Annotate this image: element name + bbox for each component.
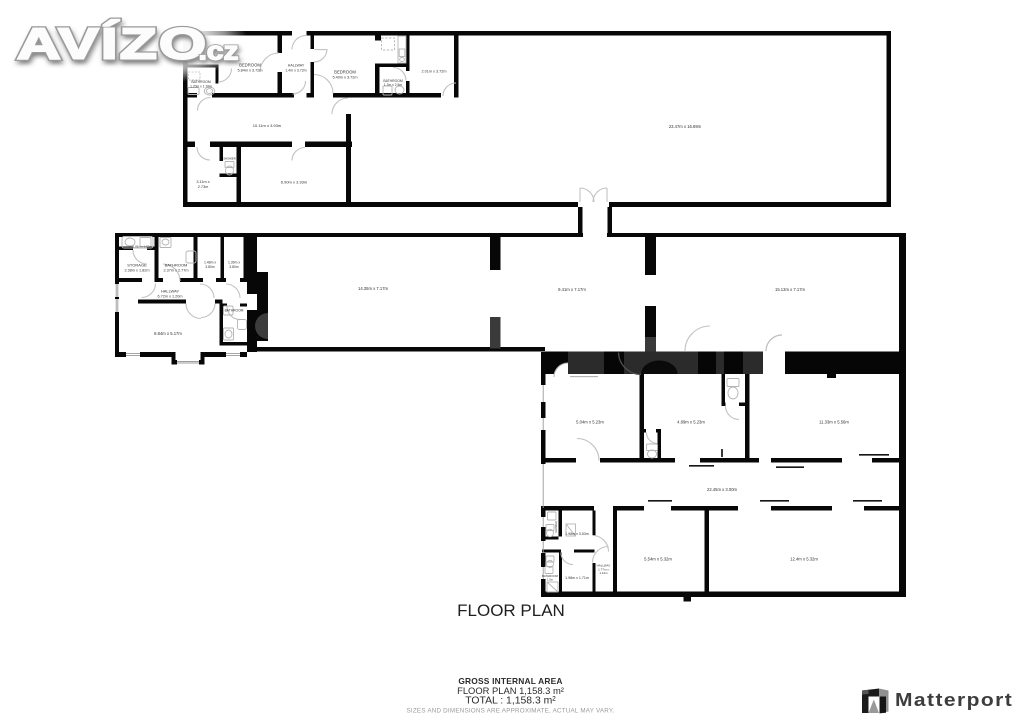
svg-text:8.84m x 5.17m: 8.84m x 5.17m	[154, 331, 182, 336]
svg-text:11.33m x 5.56m: 11.33m x 5.56m	[819, 420, 849, 425]
svg-text:BATHROOM: BATHROOM	[165, 263, 188, 268]
svg-text:1.4m x 3.72m: 1.4m x 3.72m	[285, 68, 306, 72]
svg-text:4.89m x 5.23m: 4.89m x 5.23m	[677, 420, 705, 425]
svg-text:1.69m x 1.07m: 1.69m x 1.07m	[133, 245, 152, 249]
svg-text:5.04m x 5.23m: 5.04m x 5.23m	[576, 420, 604, 425]
svg-text:.cz: .cz	[198, 37, 238, 65]
svg-text:SHOWER: SHOWER	[554, 521, 558, 533]
svg-text:1.70m x 1.70m: 1.70m x 1.70m	[190, 84, 212, 88]
svg-text:5.84m x 3.72m: 5.84m x 3.72m	[237, 69, 262, 73]
svg-text:22.45m x 3.00m: 22.45m x 3.00m	[707, 487, 738, 492]
svg-text:1.98m x 3.53m: 1.98m x 3.53m	[565, 532, 589, 536]
svg-text:6.90m x 3.93m: 6.90m x 3.93m	[281, 180, 308, 185]
svg-text:HALLWAY: HALLWAY	[161, 289, 180, 294]
svg-text:BATHROOM: BATHROOM	[225, 309, 244, 313]
svg-text:SIZES AND DIMENSIONS ARE APPRO: SIZES AND DIMENSIONS ARE APPROXIMATE, AC…	[407, 708, 615, 715]
svg-text:2.73m: 2.73m	[198, 185, 209, 189]
svg-text:23.47m x 16.89m: 23.47m x 16.89m	[669, 124, 702, 129]
svg-text:BEDROOM: BEDROOM	[334, 70, 356, 75]
svg-text:2.01m x 3.72m: 2.01m x 3.72m	[421, 70, 446, 74]
svg-text:3.80m: 3.80m	[229, 265, 239, 269]
svg-text:SHOWER: SHOWER	[223, 157, 236, 161]
svg-text:2.37m x 2.77m: 2.37m x 2.77m	[163, 269, 188, 273]
svg-text:BEDROOM: BEDROOM	[239, 63, 261, 68]
svg-text:12.4m x 5.32m: 12.4m x 5.32m	[790, 557, 818, 562]
svg-text:10.11m x 3.93m: 10.11m x 3.93m	[253, 123, 282, 128]
svg-text:AVÍZO: AVÍZO	[17, 19, 208, 69]
svg-text:9.41m x 7.17m: 9.41m x 7.17m	[558, 287, 586, 292]
svg-text:2.38m x 1.82m: 2.38m x 1.82m	[124, 269, 149, 273]
svg-text:3.11m x: 3.11m x	[196, 180, 209, 184]
svg-text:HALLWAY: HALLWAY	[288, 64, 305, 68]
svg-text:1.7m x 2.5m: 1.7m x 2.5m	[384, 83, 402, 87]
svg-text:5.40m x 3.72m: 5.40m x 3.72m	[332, 76, 357, 80]
svg-text:FLOOR PLAN 1,158.3 m²: FLOOR PLAN 1,158.3 m²	[457, 685, 564, 696]
svg-text:1.98m x 1.71m: 1.98m x 1.71m	[565, 576, 589, 580]
svg-text:TOTAL : 1,158.3 m²: TOTAL : 1,158.3 m²	[465, 696, 556, 707]
svg-text:6.72m x 1.20m: 6.72m x 1.20m	[157, 294, 182, 298]
svg-text:5.54m x 5.32m: 5.54m x 5.32m	[644, 557, 672, 562]
svg-text:1.12m: 1.12m	[599, 571, 608, 575]
svg-text:Matterport: Matterport	[895, 690, 1013, 710]
svg-text:1.5m: 1.5m	[547, 578, 554, 582]
svg-text:FLOOR PLAN: FLOOR PLAN	[457, 601, 565, 620]
svg-text:BATHROOM: BATHROOM	[191, 80, 211, 84]
svg-text:1.39m x: 1.39m x	[228, 261, 240, 265]
svg-text:14.35m x 7.17m: 14.35m x 7.17m	[358, 286, 389, 291]
svg-text:1.48m x: 1.48m x	[204, 261, 216, 265]
svg-text:3.80m: 3.80m	[205, 265, 215, 269]
svg-text:15.13m x 7.17m: 15.13m x 7.17m	[775, 287, 806, 292]
svg-text:STORAGE: STORAGE	[127, 263, 147, 268]
